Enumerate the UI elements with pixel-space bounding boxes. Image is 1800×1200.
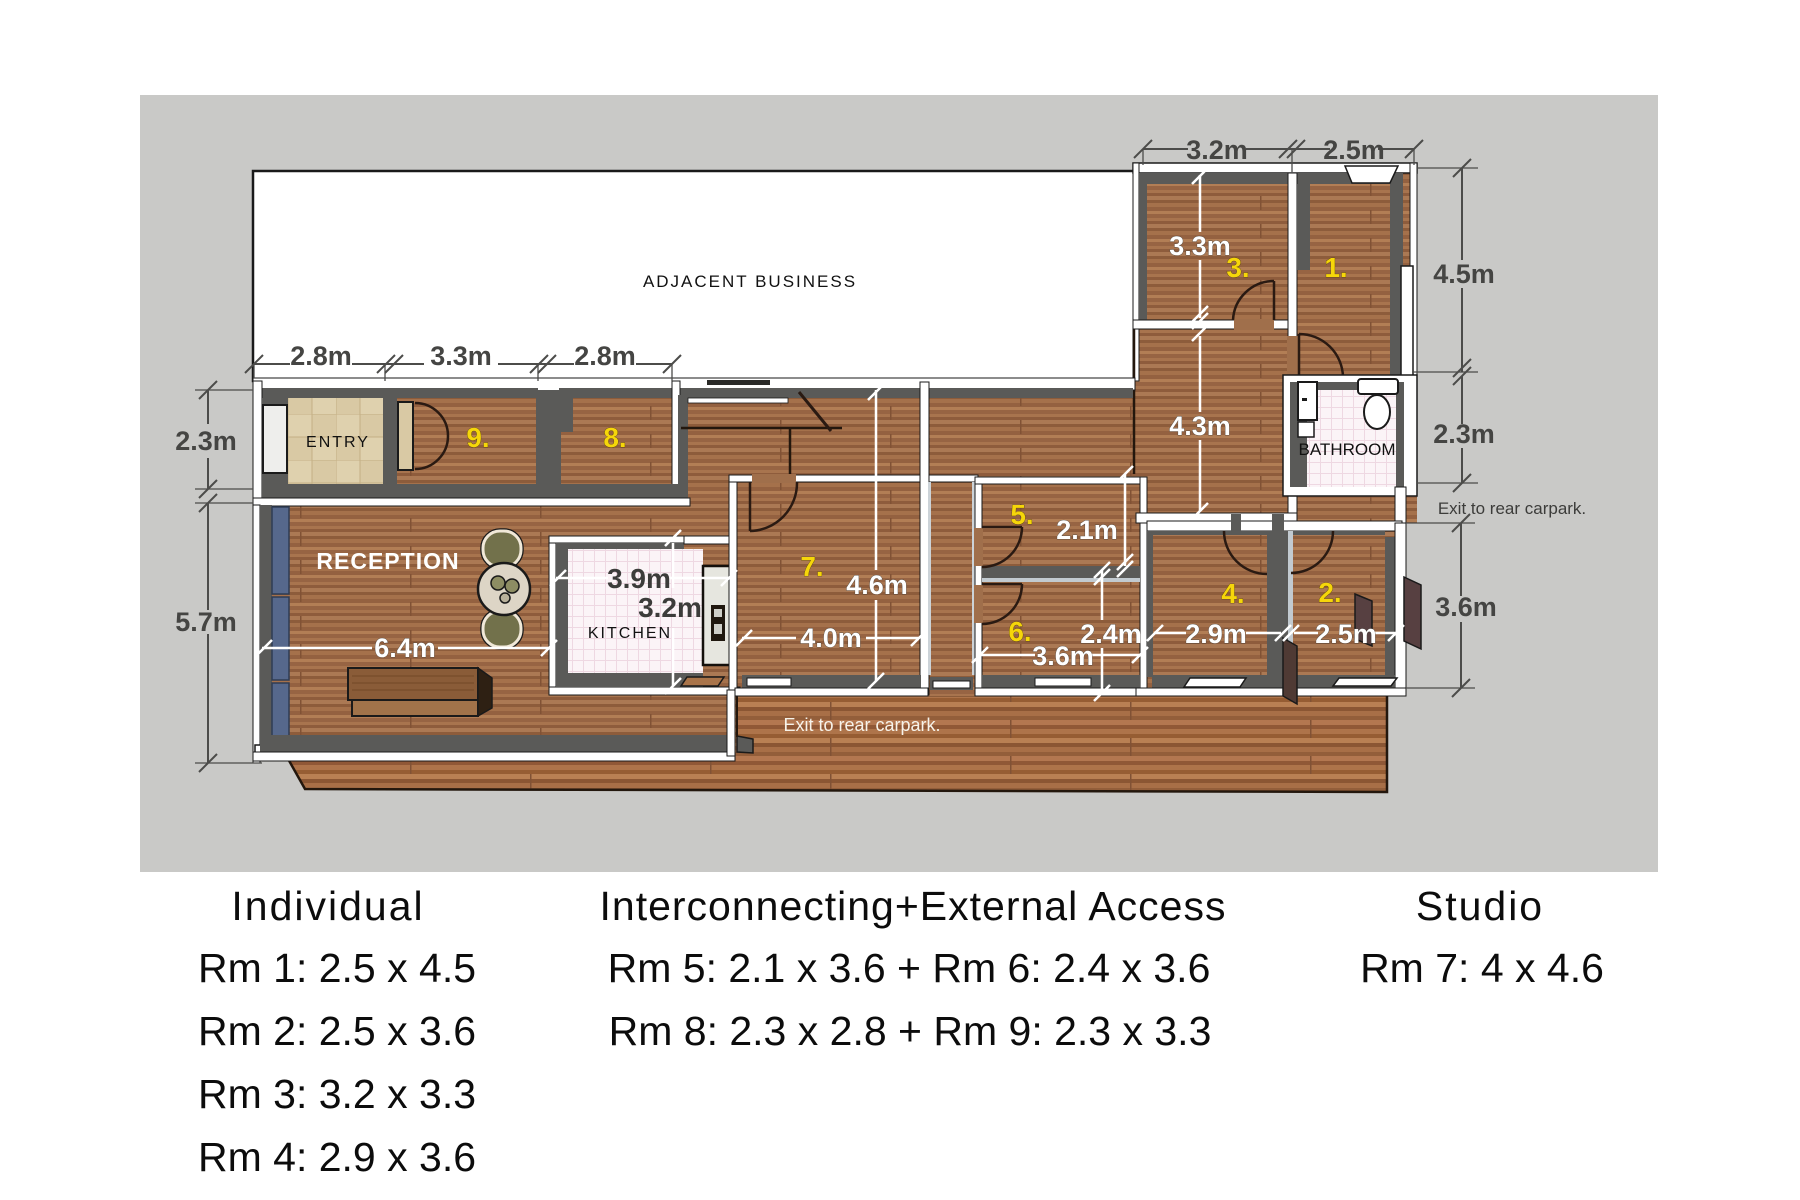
svg-text:2.: 2. xyxy=(1318,577,1341,608)
svg-text:2.8m: 2.8m xyxy=(574,341,636,371)
svg-text:Rm 5: 2.1 x 3.6 + Rm 6: 2.4 x: Rm 5: 2.1 x 3.6 + Rm 6: 2.4 x 3.6 xyxy=(608,945,1211,991)
svg-text:3.3m: 3.3m xyxy=(1169,231,1231,261)
svg-text:Rm 8: 2.3 x 2.8 + Rm 9: 2.3 x: Rm 8: 2.3 x 2.8 + Rm 9: 2.3 x 3.3 xyxy=(609,1008,1212,1054)
svg-text:3.6m: 3.6m xyxy=(1435,592,1497,622)
svg-text:3.: 3. xyxy=(1226,252,1249,283)
svg-text:Exit to rear carpark.: Exit to rear carpark. xyxy=(1438,499,1586,518)
svg-text:7.: 7. xyxy=(800,551,823,582)
svg-text:Studio: Studio xyxy=(1416,883,1544,929)
svg-text:KITCHEN: KITCHEN xyxy=(588,625,672,642)
svg-text:6.: 6. xyxy=(1008,616,1031,647)
svg-text:ADJACENT BUSINESS: ADJACENT BUSINESS xyxy=(643,272,857,291)
svg-text:3.2m: 3.2m xyxy=(1186,135,1248,165)
svg-text:Rm 7: 4 x 4.6: Rm 7: 4 x 4.6 xyxy=(1360,945,1604,991)
svg-text:3.3m: 3.3m xyxy=(430,341,492,371)
svg-text:Interconnecting+External Acces: Interconnecting+External Access xyxy=(600,883,1227,929)
svg-text:Rm 4: 2.9 x 3.6: Rm 4: 2.9 x 3.6 xyxy=(198,1134,476,1180)
svg-text:ENTRY: ENTRY xyxy=(306,434,370,451)
svg-text:2.1m: 2.1m xyxy=(1056,515,1118,545)
svg-text:3.2m: 3.2m xyxy=(638,592,702,623)
svg-text:2.3m: 2.3m xyxy=(1433,419,1495,449)
svg-text:Rm 1: 2.5 x 4.5: Rm 1: 2.5 x 4.5 xyxy=(198,945,476,991)
svg-text:2.8m: 2.8m xyxy=(290,341,352,371)
svg-text:8.: 8. xyxy=(603,422,626,453)
svg-text:Rm 2: 2.5 x 3.6: Rm 2: 2.5 x 3.6 xyxy=(198,1008,476,1054)
svg-text:2.5m: 2.5m xyxy=(1323,135,1385,165)
svg-text:2.5m: 2.5m xyxy=(1315,619,1377,649)
svg-text:1.: 1. xyxy=(1324,252,1347,283)
svg-text:2.3m: 2.3m xyxy=(175,426,237,456)
svg-text:RECEPTION: RECEPTION xyxy=(316,548,459,574)
svg-text:Individual: Individual xyxy=(231,883,424,929)
svg-text:3.6m: 3.6m xyxy=(1032,641,1094,671)
svg-text:2.9m: 2.9m xyxy=(1185,619,1247,649)
svg-text:Exit to rear carpark.: Exit to rear carpark. xyxy=(783,715,940,735)
svg-text:Rm 3: 3.2 x 3.3: Rm 3: 3.2 x 3.3 xyxy=(198,1071,476,1117)
svg-text:6.4m: 6.4m xyxy=(374,633,436,663)
svg-text:4.0m: 4.0m xyxy=(800,623,862,653)
svg-text:5.7m: 5.7m xyxy=(175,607,237,637)
svg-text:5.: 5. xyxy=(1010,499,1033,530)
svg-text:4.6m: 4.6m xyxy=(846,570,908,600)
svg-text:3.9m: 3.9m xyxy=(607,563,671,594)
svg-text:4.: 4. xyxy=(1221,578,1244,609)
svg-text:4.3m: 4.3m xyxy=(1169,411,1231,441)
svg-text:9.: 9. xyxy=(466,422,489,453)
svg-text:BATHROOM: BATHROOM xyxy=(1299,440,1396,459)
svg-text:4.5m: 4.5m xyxy=(1433,259,1495,289)
